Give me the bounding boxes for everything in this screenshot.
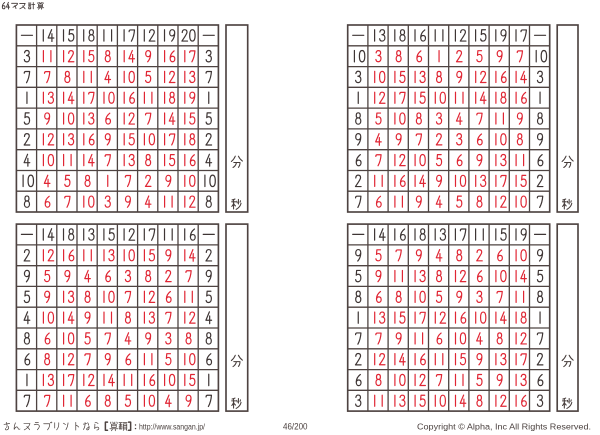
svg-text:http://www.sangan.jp/: http://www.sangan.jp/ (139, 422, 206, 431)
svg-text:46/200: 46/200 (283, 422, 308, 432)
svg-text:Copyright © Alpha, Inc All Rig: Copyright © Alpha, Inc All Rights Reserv… (417, 422, 591, 432)
